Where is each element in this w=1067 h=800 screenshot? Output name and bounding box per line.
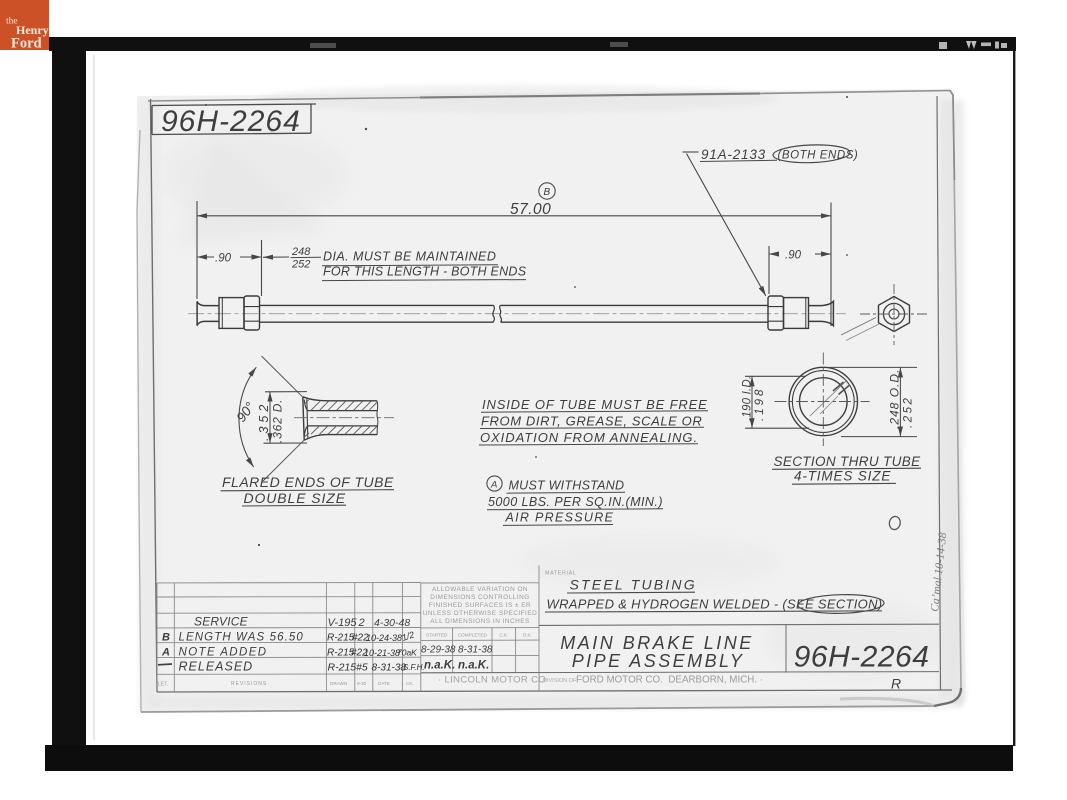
svg-text:COMPLETED: COMPLETED	[458, 633, 488, 638]
svg-text:WRAPPED & HYDROGEN WELDED - (S: WRAPPED & HYDROGEN WELDED - (SEE SECTION…	[547, 597, 883, 612]
svg-text:8-29-38: 8-29-38	[421, 645, 456, 656]
svg-text:4-30-48: 4-30-48	[374, 617, 410, 629]
svg-text:CK.: CK.	[406, 681, 414, 686]
svg-text:FLARED ENDS OF TUBE: FLARED ENDS OF TUBE	[222, 474, 394, 490]
svg-text:248: 248	[291, 246, 311, 258]
svg-text:8-31-38: 8-31-38	[372, 663, 407, 674]
svg-text:10-21-38: 10-21-38	[364, 648, 400, 658]
svg-text:5000 LBS. PER SQ.IN.(MIN.): 5000 LBS. PER SQ.IN.(MIN.)	[488, 495, 663, 509]
svg-text:9-30: 9-30	[357, 681, 367, 686]
svg-text:RELEASED: RELEASED	[179, 660, 254, 674]
svg-text:C.K.: C.K.	[499, 633, 508, 638]
svg-text:.90: .90	[215, 253, 232, 265]
svg-text:.90: .90	[785, 250, 802, 262]
svg-text:LET.: LET.	[158, 682, 168, 688]
svg-text:SECTION THRU TUBE: SECTION THRU TUBE	[774, 454, 922, 469]
svg-text:O.K.: O.K.	[523, 633, 532, 638]
svg-text:R-215: R-215	[328, 662, 357, 674]
svg-text:57.00: 57.00	[510, 201, 551, 218]
svg-text:AIR PRESSURE: AIR PRESSURE	[505, 511, 615, 525]
svg-text:SERVICE: SERVICE	[194, 615, 249, 629]
svg-text:91A-2133: 91A-2133	[701, 147, 766, 162]
svg-text:FROM DIRT, GREASE, SCALE OR: FROM DIRT, GREASE, SCALE OR	[481, 414, 702, 429]
svg-text:70aK: 70aK	[397, 648, 417, 658]
svg-text:#5: #5	[356, 662, 368, 674]
svg-text:DIA. MUST BE MAINTAINED: DIA. MUST BE MAINTAINED	[323, 250, 496, 264]
svg-text:MAIN BRAKE LINE: MAIN BRAKE LINE	[560, 633, 754, 653]
svg-text:n.a.K.: n.a.K.	[458, 660, 489, 672]
svg-text:96H-2264: 96H-2264	[794, 641, 930, 674]
svg-text:B: B	[544, 187, 551, 198]
svg-text:FORD MOTOR CO. DEARBORN, MICH: FORD MOTOR CO. DEARBORN, MICH. ·	[576, 675, 763, 686]
svg-text:.198: .198	[754, 387, 766, 421]
svg-text:.352: .352	[257, 401, 271, 441]
svg-text:4-TIMES SIZE: 4-TIMES SIZE	[794, 469, 891, 484]
svg-text:.190 I.D.: .190 I.D.	[742, 376, 754, 421]
svg-text:8-31-38: 8-31-38	[458, 645, 493, 656]
svg-text:R: R	[891, 676, 901, 692]
svg-text:DRAWN: DRAWN	[330, 681, 347, 686]
svg-text:FINISHED SURFACES IS ± ER: FINISHED SURFACES IS ± ER	[429, 602, 531, 609]
svg-text:DOUBLE SIZE: DOUBLE SIZE	[244, 490, 346, 506]
svg-text:10-24-38: 10-24-38	[366, 633, 402, 643]
svg-text:LENGTH WAS 56.50: LENGTH WAS 56.50	[179, 632, 304, 644]
svg-text:ALL DIMENSIONS IN INCHES: ALL DIMENSIONS IN INCHES	[430, 618, 529, 625]
svg-text:· LINCOLN MOTOR CO: · LINCOLN MOTOR CO	[438, 675, 546, 686]
svg-text:B: B	[162, 632, 170, 644]
svg-text:NOTE ADDED: NOTE ADDED	[179, 647, 268, 659]
svg-text:FOR THIS LENGTH - BOTH ENDS: FOR THIS LENGTH - BOTH ENDS	[323, 265, 527, 279]
svg-text:A: A	[161, 647, 170, 659]
svg-text:STEEL TUBING: STEEL TUBING	[570, 577, 697, 593]
svg-text:.362 D.: .362 D.	[271, 399, 285, 443]
svg-text:.248 O.D.: .248 O.D.	[888, 369, 902, 429]
svg-text:252: 252	[291, 259, 310, 271]
svg-text:MUST WITHSTAND: MUST WITHSTAND	[509, 479, 625, 493]
svg-text:OXIDATION FROM ANNEALING.: OXIDATION FROM ANNEALING.	[480, 430, 698, 445]
svg-text:REVISIONS: REVISIONS	[231, 681, 267, 687]
svg-text:STARTED: STARTED	[426, 633, 448, 638]
svg-text:A: A	[490, 480, 497, 491]
svg-text:ALLOWABLE VARIATION ON: ALLOWABLE VARIATION ON	[432, 586, 528, 593]
svg-text:S.F.H.: S.F.H.	[403, 663, 425, 672]
svg-text:V-195: V-195	[328, 617, 358, 629]
svg-text:(BOTH ENDS): (BOTH ENDS)	[778, 150, 859, 162]
svg-text:UNLESS OTHERWISE SPECIFIED: UNLESS OTHERWISE SPECIFIED	[423, 610, 537, 617]
svg-text:R-215: R-215	[327, 633, 355, 644]
svg-text:96H-2264: 96H-2264	[161, 105, 301, 138]
svg-text:DIMENSIONS CONTROLLING: DIMENSIONS CONTROLLING	[430, 594, 529, 601]
svg-text:INSIDE OF TUBE MUST BE FREE: INSIDE OF TUBE MUST BE FREE	[482, 397, 708, 412]
svg-text:.252: .252	[903, 396, 915, 428]
svg-text:DIVISION OF: DIVISION OF	[543, 678, 577, 684]
svg-text:Ford: Ford	[11, 36, 42, 52]
svg-text:n.a.K.: n.a.K.	[424, 660, 455, 672]
svg-text:DATE: DATE	[378, 681, 390, 686]
svg-text:PIPE ASSEMBLY: PIPE ASSEMBLY	[572, 651, 745, 671]
svg-text:2: 2	[358, 617, 365, 629]
